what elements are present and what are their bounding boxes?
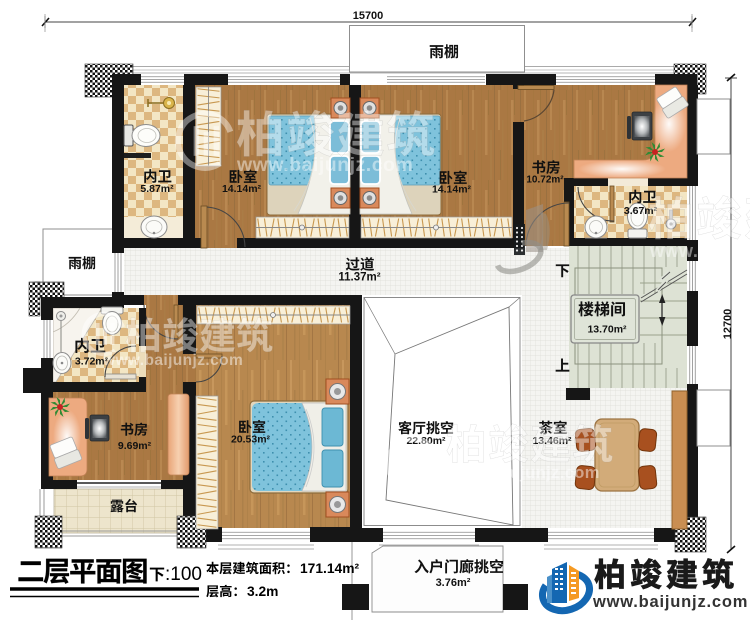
svg-text:www.baijunjz.com: www.baijunjz.com (236, 154, 413, 176)
svg-text:9.69m²: 9.69m² (118, 440, 152, 452)
svg-text:3.2m: 3.2m (247, 584, 278, 599)
svg-text:13.70m²: 13.70m² (587, 324, 627, 336)
svg-text:10.72m²: 10.72m² (526, 175, 564, 186)
svg-text:www.baijunjz.com: www.baijunjz.com (450, 464, 600, 482)
svg-text:14.14m²: 14.14m² (222, 183, 262, 195)
svg-text:11.37m²: 11.37m² (338, 272, 380, 284)
svg-text:www.baijunjz.com: www.baijunjz.com (102, 352, 243, 369)
svg-text:3.76m²: 3.76m² (436, 577, 471, 589)
svg-text:20.53m²: 20.53m² (231, 434, 271, 446)
svg-text:www.baijunjz.com: www.baijunjz.com (592, 593, 748, 611)
svg-text:15700: 15700 (353, 10, 384, 22)
svg-text:14.14m²: 14.14m² (432, 184, 472, 196)
svg-text::100: :100 (165, 564, 202, 585)
svg-text:171.14m²: 171.14m² (300, 561, 359, 576)
svg-text:5.87m²: 5.87m² (140, 183, 174, 195)
svg-text:12700: 12700 (722, 309, 734, 340)
svg-text:www.baijunjz.com: www.baijunjz.com (649, 241, 750, 261)
